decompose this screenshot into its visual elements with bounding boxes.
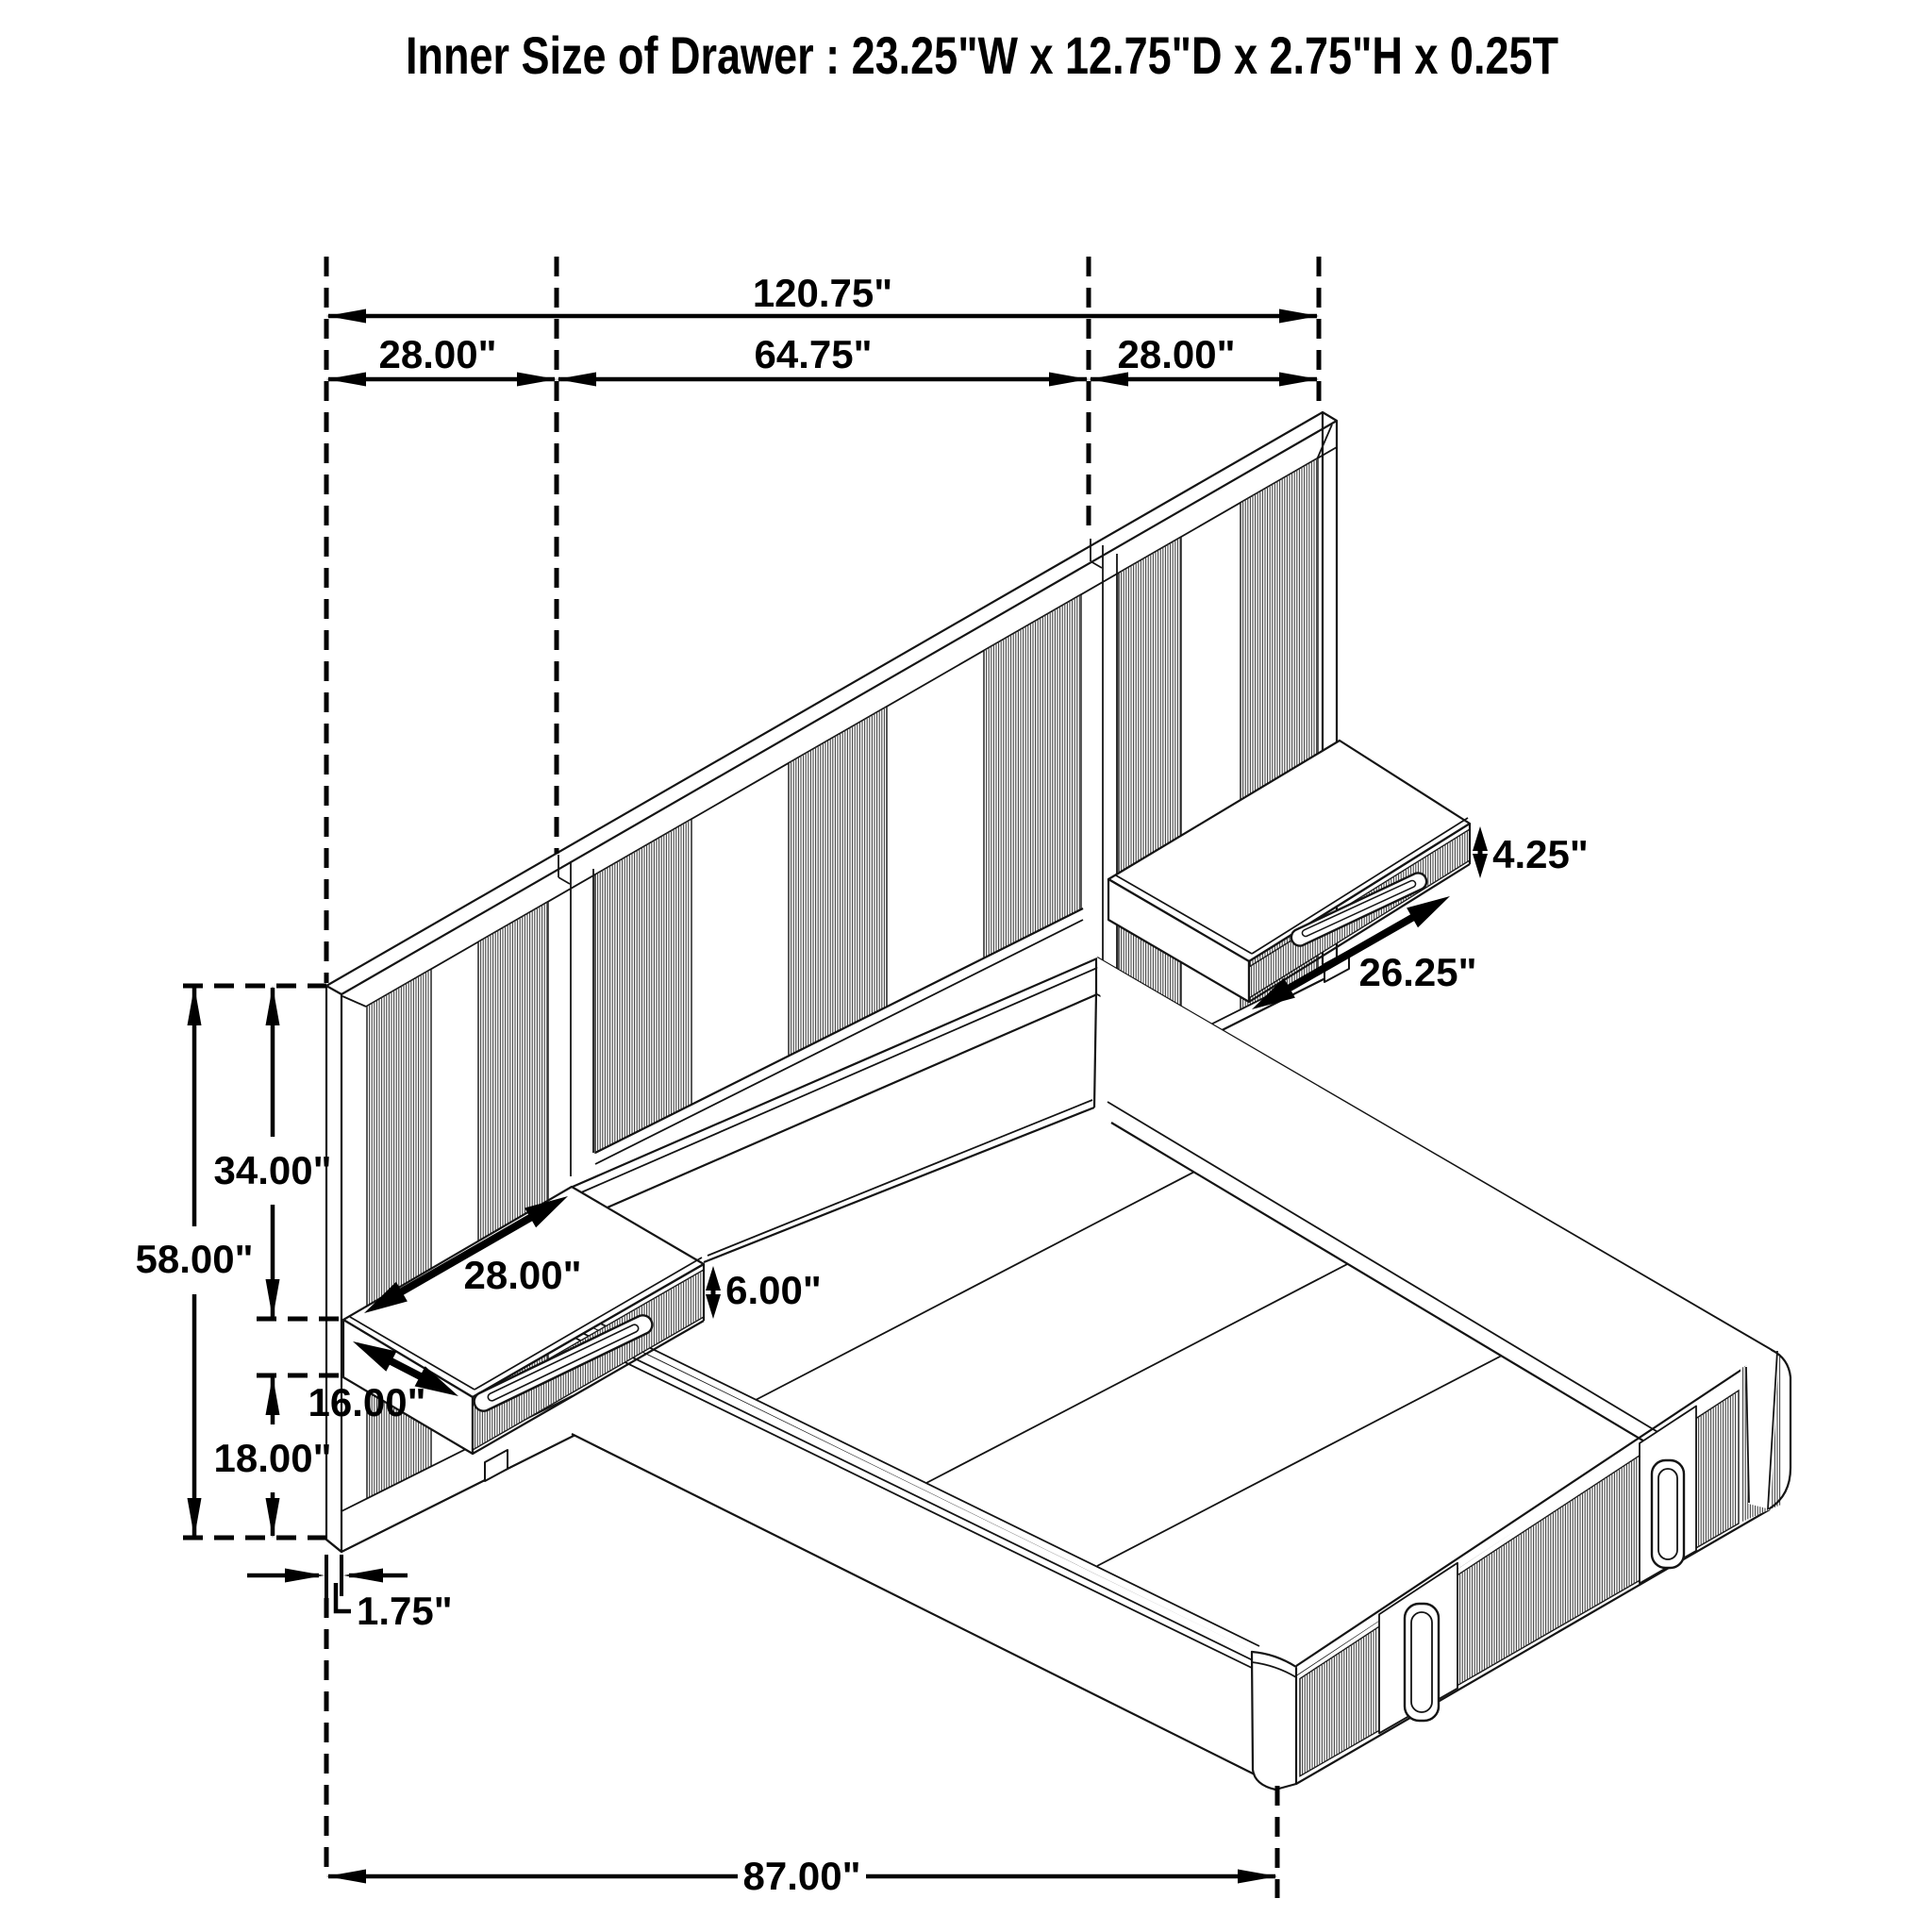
svg-text:4.25": 4.25" xyxy=(1492,832,1589,876)
svg-text:1.75": 1.75" xyxy=(357,1589,453,1633)
svg-text:87.00": 87.00" xyxy=(742,1854,860,1898)
svg-text:64.75": 64.75" xyxy=(754,332,872,376)
svg-text:58.00": 58.00" xyxy=(135,1237,253,1281)
svg-text:6.00": 6.00" xyxy=(725,1268,822,1312)
svg-text:34.00": 34.00" xyxy=(213,1148,331,1192)
svg-text:120.75": 120.75" xyxy=(753,271,892,315)
svg-text:28.00": 28.00" xyxy=(1117,332,1235,376)
svg-text:16.00": 16.00" xyxy=(308,1380,425,1424)
svg-text:26.25": 26.25" xyxy=(1358,950,1476,994)
svg-text:Inner Size of Drawer : 23.25"W: Inner Size of Drawer : 23.25"W x 12.75"D… xyxy=(406,25,1558,85)
svg-text:18.00": 18.00" xyxy=(213,1436,331,1480)
svg-text:28.00": 28.00" xyxy=(463,1253,581,1297)
svg-text:28.00": 28.00" xyxy=(378,332,496,376)
